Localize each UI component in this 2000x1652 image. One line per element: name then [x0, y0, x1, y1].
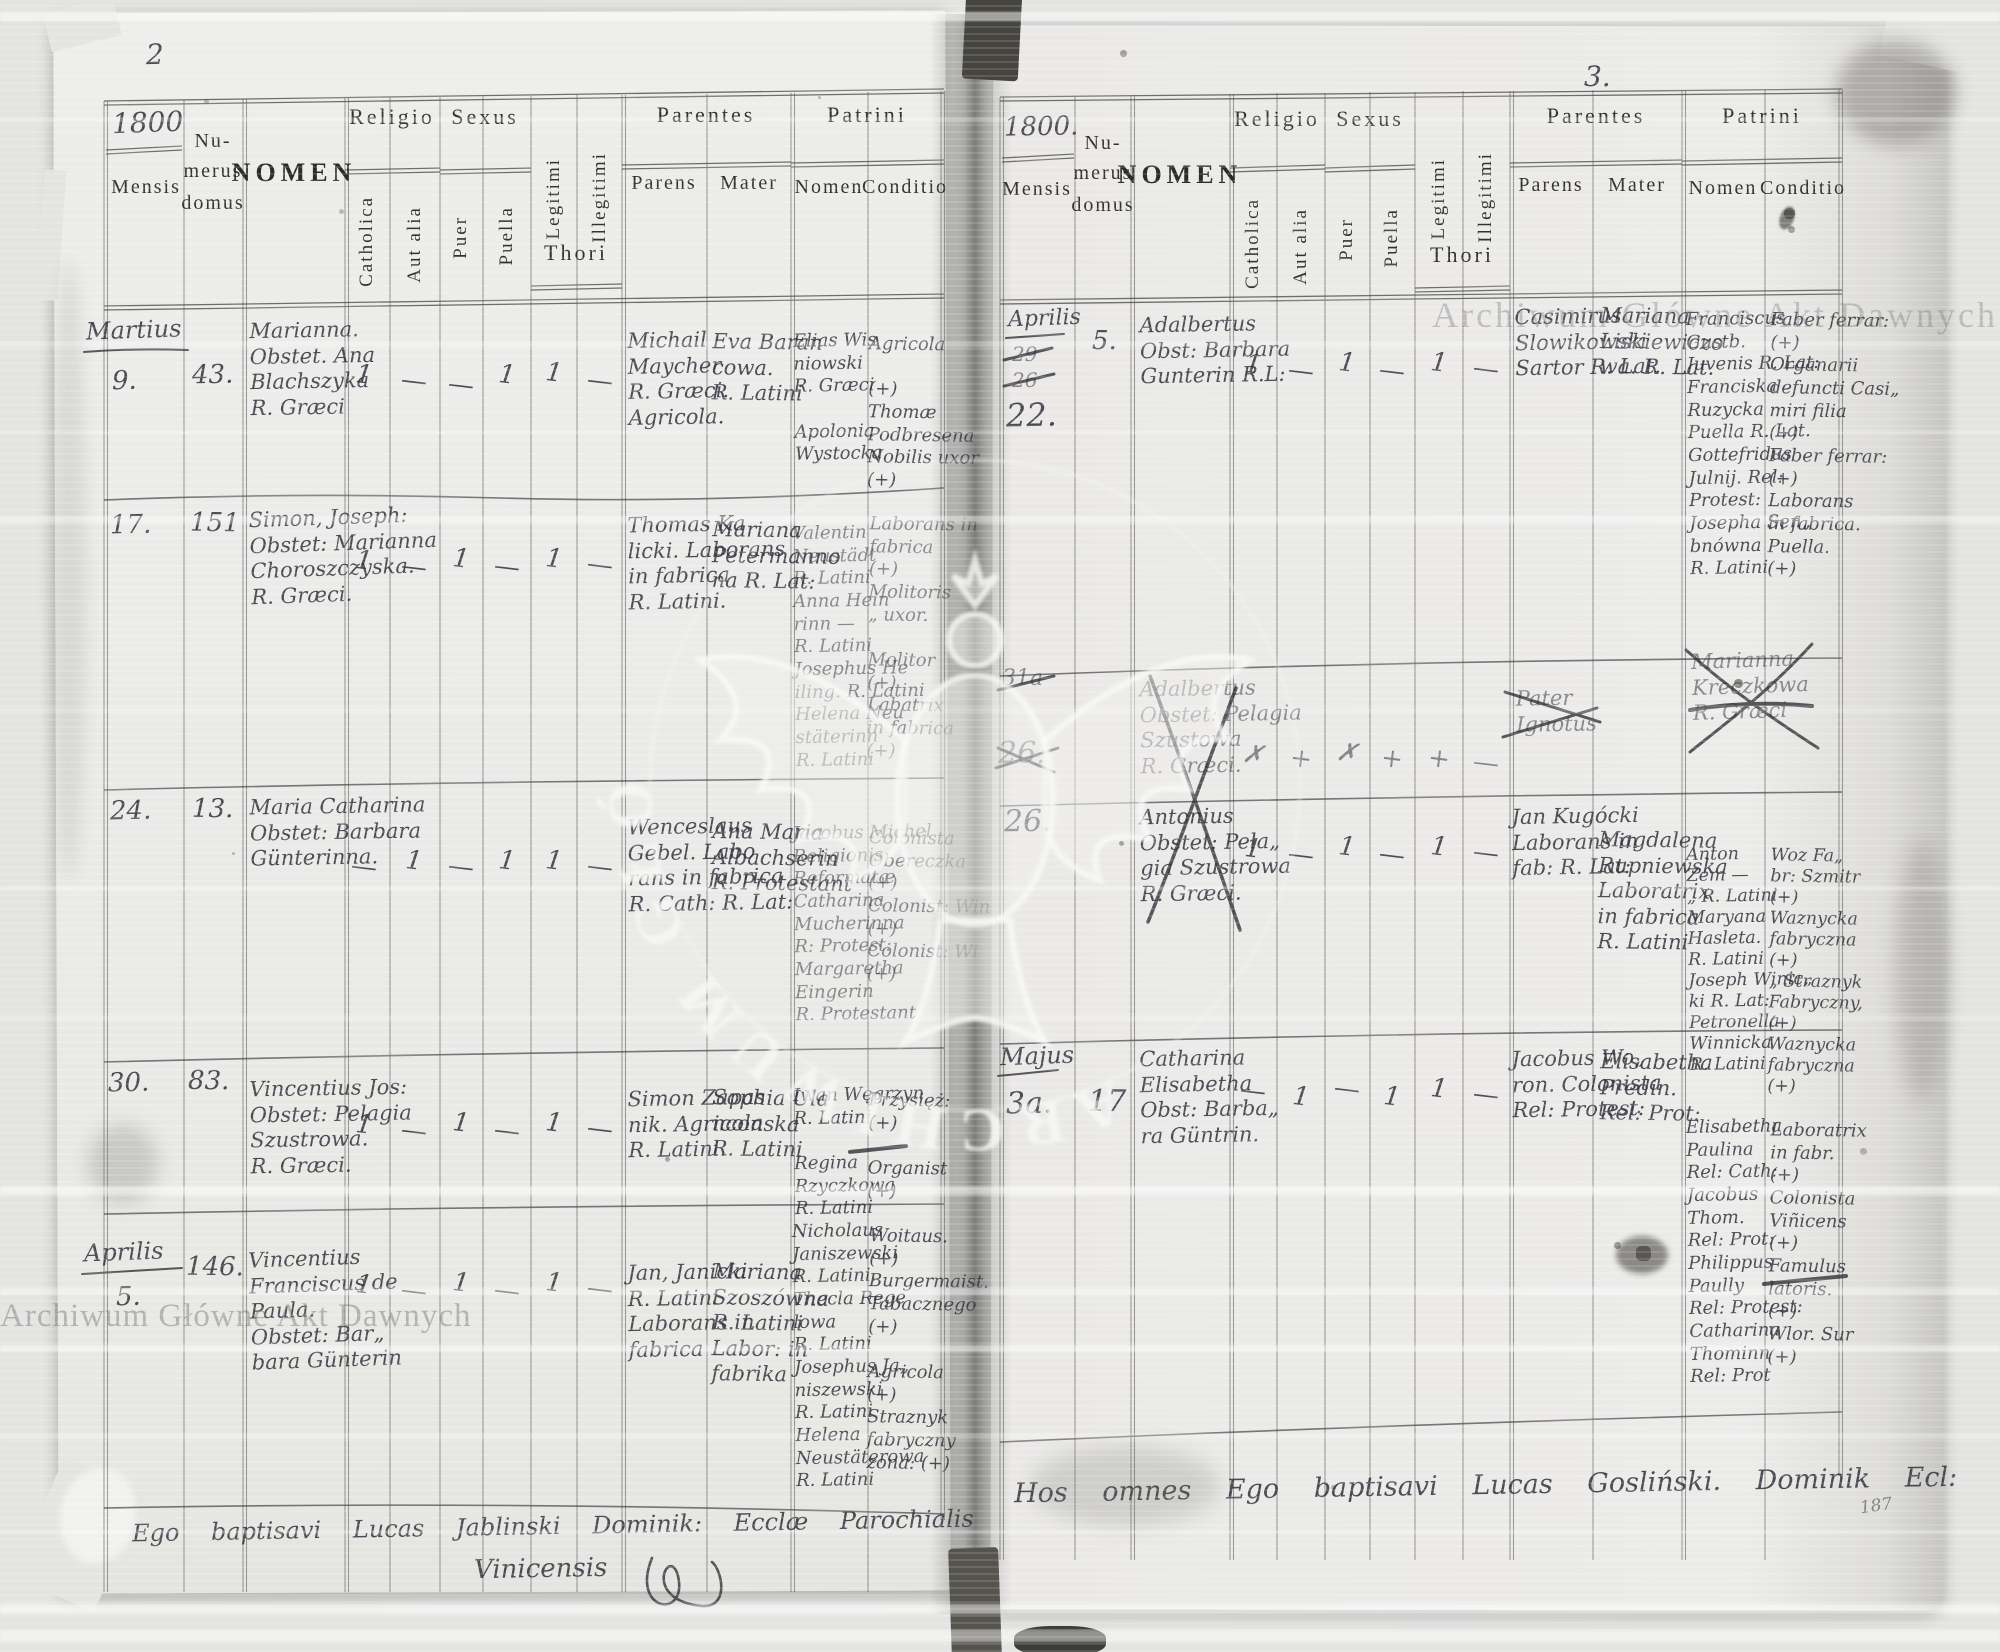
scan-streak — [0, 1434, 2000, 1439]
year-right: 1800. — [1004, 111, 1079, 144]
row-domus: 146. — [186, 1252, 244, 1285]
mark-illegitimi: — — [585, 365, 614, 398]
col-legitimi-left: Legitimi — [543, 158, 565, 239]
row-domus: 151 — [190, 508, 240, 540]
mark-puer: — — [446, 369, 475, 402]
mark-puella: — — [492, 1115, 521, 1148]
mark-illegitimi: — — [585, 549, 614, 582]
footer-parish-name: Vinicensis — [474, 1553, 608, 1587]
mark-legitimi: + — [1426, 743, 1451, 775]
col-illegitimi-left: Illegitimi — [589, 152, 611, 243]
mark-puella: — — [1377, 839, 1406, 872]
page-number-left: 2 — [146, 38, 164, 72]
row-day-struck: 26 — [1012, 368, 1037, 392]
col-catholica-right: Catholica — [1242, 198, 1264, 289]
col-patrini-nomen-right: Nomen — [1689, 177, 1758, 200]
scan-streak — [0, 1288, 2000, 1295]
col-legitimi-right: Legitimi — [1428, 158, 1450, 239]
col-catholica-left: Catholica — [356, 196, 378, 287]
scan-streak — [0, 430, 2000, 434]
col-domus-right: domus — [1071, 194, 1134, 217]
row-day: 26. — [1004, 804, 1052, 841]
mark-puer: — — [446, 851, 475, 884]
row-nomen-cell: Adalbertus Obst: Barbara Gunterin R.L: — [1139, 311, 1290, 390]
row-day: 30. — [108, 1068, 150, 1100]
col-patrini-left: Patrini — [827, 102, 907, 128]
row-month: Majus — [1000, 1041, 1075, 1073]
mark-illegitimi: — — [1471, 353, 1500, 386]
row-domus: 17 — [1088, 1084, 1127, 1121]
row-day: 24. — [110, 796, 152, 828]
col-nu-right: Nu- — [1084, 132, 1121, 155]
row-mater-cell-crossed: Marianna Kreczkowa R. Græci — [1691, 646, 1810, 727]
col-autalia-left: Aut alia — [404, 206, 426, 283]
page-number-right: 3. — [1584, 60, 1611, 95]
ink-specks — [0, 0, 3, 3]
col-sexus-left: Sexus — [451, 104, 519, 130]
row-day-struck: 26. — [998, 736, 1046, 773]
col-patrini-nomen-left: Nomen — [795, 176, 864, 199]
row-nomen-cell: Maria Catharina Obstet: Barbara Günterin… — [249, 792, 426, 872]
col-nu-left: Nu- — [194, 130, 231, 153]
col-religio-left: Religio — [349, 104, 435, 130]
row-domus: 13. — [192, 794, 234, 826]
row-nomen-cell: Antonius Obstet: Pela„ gia Szustrowa R. … — [1139, 803, 1291, 908]
col-illegitimi-right: Illegitimi — [1475, 152, 1497, 243]
col-puer-right: Puer — [1336, 218, 1358, 261]
col-nomen-right: NOMEN — [1118, 160, 1243, 190]
col-parens-right: Parens — [1518, 174, 1583, 197]
row-month: Aprilis — [84, 1237, 164, 1269]
scan-streak — [0, 516, 2000, 523]
row-day: 9. — [112, 366, 137, 398]
scan-streak — [0, 12, 2000, 21]
year-left: 1800 — [111, 105, 183, 142]
watermark-text-top-right: Archiwum Główne Akt Dawnych — [1430, 294, 1998, 336]
scan-streak — [0, 118, 2000, 122]
row-day-struck: 31a — [1002, 666, 1043, 693]
mark-illegitimi: — — [1471, 1079, 1500, 1112]
mark-puella: — — [1377, 355, 1406, 388]
col-parens-left: Parens — [631, 172, 696, 195]
mark-illegitimi: — — [1471, 837, 1500, 870]
scanned-register-spread: 2 1800 Mensis Nu- merus domus NOMEN Reli… — [0, 0, 2000, 1652]
mark-autalia: — — [399, 365, 428, 398]
row-patrini-conditio-cell: Woz Fa„ br: Szmitr (+) Waznycka fabryczn… — [1767, 845, 1865, 1098]
row-patrini-conditio-cell: Agricola (+) Thomæ Podbresena Nobilis ux… — [867, 333, 981, 493]
row-patrini-conditio-cell: Colonista Obereczka (+) Colonist: Win (+… — [867, 827, 992, 987]
col-mensis-right: Mensis — [1002, 178, 1072, 201]
row-domus: 83. — [188, 1066, 230, 1098]
col-mater-left: Mater — [720, 172, 778, 195]
col-puella-right: Puella — [1381, 208, 1403, 268]
watermark-text-bottom-left: Archiwum Główne Akt Dawnych — [0, 1298, 472, 1335]
col-domus-left: domus — [181, 192, 244, 215]
row-patrini-conditio-cell: Faber ferrar: (+) Organarii defuncti Cas… — [1767, 309, 1900, 583]
mark-illegitimi: — — [585, 1113, 614, 1146]
col-mater-right: Mater — [1608, 174, 1666, 197]
col-conditio-left: Conditio — [862, 176, 948, 199]
row-month: Aprilis — [1008, 305, 1082, 334]
col-autalia-right: Aut alia — [1290, 208, 1312, 285]
mark-puella: + — [1379, 743, 1404, 775]
row-day: 3a. — [1006, 1086, 1053, 1123]
scan-streak — [0, 1345, 2000, 1352]
scan-streak — [0, 1604, 2000, 1614]
scan-streak — [0, 1530, 2000, 1534]
col-mensis-left: Mensis — [111, 176, 181, 199]
row-day: 17. — [110, 510, 152, 542]
scan-streak — [0, 1016, 2000, 1020]
row-domus: 43. — [192, 360, 234, 392]
col-nomen-left: NOMEN — [232, 158, 357, 188]
col-thori-right: Thori — [1430, 242, 1494, 268]
col-parentes-left: Parentes — [657, 102, 756, 128]
scan-streak — [0, 708, 2000, 712]
mark-autalia: — — [1286, 355, 1315, 388]
mark-illegitimi: — — [585, 851, 614, 884]
col-parentes-right: Parentes — [1547, 103, 1646, 129]
scan-streak — [0, 886, 2000, 891]
mark-catholica: ✗ — [1240, 739, 1265, 771]
mark-autalia: + — [1288, 743, 1313, 775]
row-nomen-cell-crossed: Adalbertus Obstet: Pelagia Szustowa R. G… — [1139, 675, 1303, 780]
scan-streak — [0, 1186, 2000, 1195]
mark-autalia: — — [399, 1115, 428, 1148]
mark-illegitimi: — — [1471, 747, 1500, 780]
mark-catholica: — — [1238, 1075, 1267, 1108]
mark-puer: — — [1332, 1073, 1361, 1106]
col-conditio-right: Conditio — [1760, 177, 1846, 200]
row-patrini-conditio-cell: Laborans in fabrica (+) Molitoris „ uxor… — [866, 513, 978, 764]
mark-puella: — — [492, 551, 521, 584]
row-patrini-conditio-cell: Laboratrix in fabr. (+) Colonista Viñice… — [1767, 1119, 1867, 1370]
scan-streak — [0, 342, 2000, 347]
col-puer-left: Puer — [450, 216, 472, 259]
mark-autalia: — — [1286, 839, 1315, 872]
col-patrini-right: Patrini — [1722, 103, 1802, 129]
col-thori-left: Thori — [544, 240, 608, 266]
mark-autalia: — — [399, 551, 428, 584]
scan-streak — [0, 1630, 2000, 1642]
row-nomen-cell: Vincentius Jos: Obstet: Pelagia Szustrow… — [249, 1075, 413, 1180]
mark-catholica: — — [349, 851, 378, 884]
mark-puer: ✗ — [1334, 737, 1359, 769]
col-puella-left: Puella — [496, 206, 518, 266]
